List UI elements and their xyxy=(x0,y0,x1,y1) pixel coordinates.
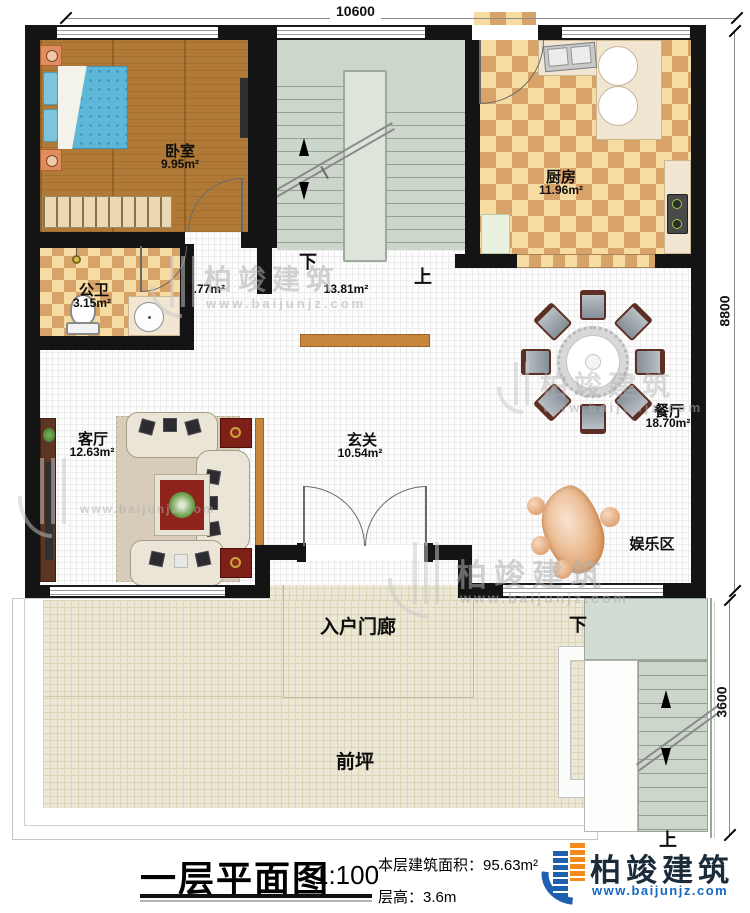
wall-right xyxy=(691,25,706,598)
exterior-stair-down: 下 xyxy=(569,611,587,637)
room-area-dining: 18.70m² xyxy=(646,416,691,430)
watermark-site: www.baijunjz.com xyxy=(460,590,629,606)
wall-top-pier2 xyxy=(425,25,472,40)
room-area-foyer: 10.54m² xyxy=(338,446,383,460)
room-area-kitchen: 11.96m² xyxy=(539,183,583,197)
floor-plan: 10600 8800 3600 卧室 9.95m² 厨房 11.96m² 公卫 … xyxy=(0,0,750,913)
nightstand-knob xyxy=(46,155,58,167)
title-underline xyxy=(140,894,372,898)
dim-label-right: 8800 xyxy=(717,289,733,332)
wardrobe xyxy=(42,196,172,228)
window-bedroom xyxy=(57,25,218,40)
wall-stair-kitchen xyxy=(465,40,480,254)
wall-bedroom-right xyxy=(248,40,277,232)
wood-partition xyxy=(255,418,264,546)
dim-label-top: 10600 xyxy=(330,3,381,19)
kitchen-sink-basin xyxy=(547,47,568,67)
porch-slab-line xyxy=(43,696,284,697)
cabinet-medallion xyxy=(230,557,241,568)
floor-area-label: 本层建筑面积： xyxy=(378,857,483,874)
window-living xyxy=(50,585,225,598)
tv-plant xyxy=(43,428,55,442)
kitchen-threshold xyxy=(517,254,655,268)
bed-pillow xyxy=(43,109,58,142)
stair-arrow-down xyxy=(299,182,309,200)
bedroom-door-leaf xyxy=(241,178,243,232)
stair-center-flight xyxy=(343,70,387,262)
dim-tick xyxy=(724,829,737,842)
dim-line-right xyxy=(734,30,735,592)
stove-burner xyxy=(672,199,682,209)
room-label-fun: 娱乐区 xyxy=(629,533,674,554)
room-area-bedroom: 9.95m² xyxy=(161,157,199,171)
watermark-site: www.baijunjz.com xyxy=(206,296,366,311)
room-area-bath: 3.15m² xyxy=(73,296,111,310)
wall-fun-bottom-right xyxy=(663,583,706,598)
watermark-site: www.baijunjz.com xyxy=(543,400,703,415)
stair-arrow-up xyxy=(299,138,309,156)
pillow xyxy=(163,418,177,432)
brand-website: www.baijunjz.com xyxy=(592,883,728,898)
wall-kitchen-bottom-right xyxy=(655,254,692,268)
kitchen-door-leaf xyxy=(479,40,481,104)
nightstand-knob xyxy=(46,50,58,62)
pillow xyxy=(195,551,212,568)
exterior-stair-landing xyxy=(584,598,708,660)
room-label-yard: 前坪 xyxy=(336,747,374,774)
window-stairwell xyxy=(277,25,425,40)
stair-steps-left xyxy=(277,86,343,244)
kitchen-bowl xyxy=(598,46,638,86)
floor-area-value: 95.63m² xyxy=(483,857,538,874)
dining-chair xyxy=(580,290,606,320)
dim-tick xyxy=(729,25,742,38)
exterior-stair-arrow-down xyxy=(661,748,671,766)
floor-area-note: 本层建筑面积：95.63m² xyxy=(378,854,538,875)
entry-door-leaf-right xyxy=(425,486,427,546)
wall-bath-bottom xyxy=(25,336,194,350)
plan-scale: 1:100 xyxy=(314,860,379,891)
toilet-tank xyxy=(66,322,100,335)
dim-line-top xyxy=(66,18,737,19)
decor-ball xyxy=(600,507,620,527)
exterior-stair-walkway xyxy=(584,660,638,832)
stair-label-up: 上 xyxy=(414,263,432,289)
floor-height-label: 层高： xyxy=(378,889,423,906)
window-kitchen xyxy=(562,25,690,40)
bed-sheet xyxy=(58,66,98,149)
watermark-site: www.baijunjz.com xyxy=(80,502,216,516)
watermark-logo-icon xyxy=(150,256,198,318)
title-underline-shadow xyxy=(140,900,372,902)
stair-steps-right xyxy=(387,112,465,250)
wall-kitchen-bottom-left xyxy=(455,254,517,268)
wall-bottom-corner-left xyxy=(25,585,50,598)
pillow xyxy=(174,554,188,568)
wall-bedroom-door-stub xyxy=(241,232,277,248)
light-pull-knob xyxy=(72,255,81,264)
wall-top-pier1 xyxy=(218,25,277,40)
wall-top-pier3 xyxy=(538,25,562,40)
bed-pillow xyxy=(43,72,58,105)
exterior-stair-arrow-up xyxy=(661,690,671,708)
cabinet-medallion xyxy=(230,427,241,438)
foyer-bench xyxy=(300,334,430,347)
room-label-porch: 入户门廊 xyxy=(320,612,396,639)
watermark-name: 柏竣建筑 xyxy=(540,364,676,404)
decor-ball xyxy=(527,497,545,515)
floor-height-note: 层高：3.6m xyxy=(378,886,456,907)
stove-burner xyxy=(672,219,682,229)
room-area-living: 12.63m² xyxy=(70,445,115,459)
kitchen-bowl xyxy=(598,86,638,126)
watermark-logo-icon xyxy=(388,542,448,618)
watermark-name: 柏竣建筑 xyxy=(204,258,340,298)
kitchen-appliance xyxy=(481,214,510,254)
brand-logo-icon xyxy=(540,843,588,905)
floor-height-value: 3.6m xyxy=(423,889,456,906)
watermark-logo-icon xyxy=(497,362,537,414)
dim-label-stair: 3600 xyxy=(714,680,730,723)
watermark-name: 柏竣建筑 xyxy=(456,550,608,595)
kitchen-sink-basin xyxy=(570,45,591,65)
bath-door-leaf xyxy=(140,246,142,292)
entry-door-leaf-left xyxy=(303,486,305,546)
pillow xyxy=(149,551,166,568)
watermark-logo-icon xyxy=(18,458,70,538)
